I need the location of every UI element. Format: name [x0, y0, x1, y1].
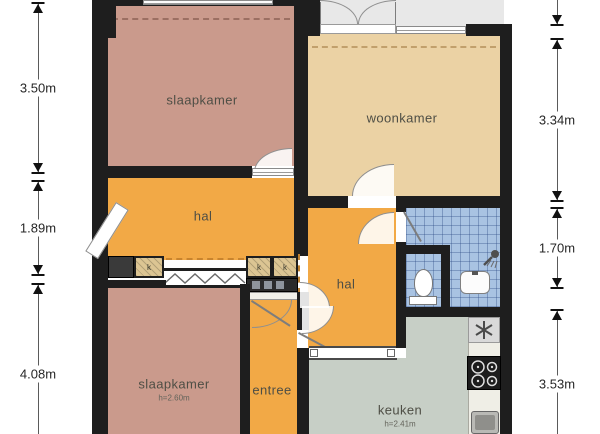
window — [143, 0, 273, 5]
closet-label: k — [147, 263, 151, 272]
kitchen-sink-icon — [471, 411, 499, 434]
open-boundary-dashed — [166, 258, 244, 260]
closet: k — [272, 256, 298, 278]
wall — [294, 0, 308, 256]
room-label: hal — [194, 209, 213, 224]
wall — [441, 245, 450, 307]
ceiling-height-label: h=2.60m — [158, 394, 189, 403]
dimension-label: 4.08m — [17, 365, 59, 382]
room-slaapkamer-bottom — [108, 288, 240, 434]
divider-post — [310, 349, 318, 357]
wall — [294, 0, 320, 36]
toilet-icon — [409, 296, 437, 305]
room-divider — [309, 346, 397, 360]
extractor-fan-icon — [468, 317, 500, 343]
divider-post — [387, 349, 395, 357]
counter-strip — [246, 292, 298, 300]
wall — [108, 166, 252, 178]
room-label: hal — [337, 277, 356, 292]
dimension: 3.34m — [535, 38, 579, 202]
room-label: keuken — [378, 403, 422, 418]
room-slaapkamer-top — [108, 5, 294, 166]
closet: k — [134, 256, 164, 278]
dimension-label: 3.34m — [536, 112, 578, 129]
folding-door — [164, 268, 246, 288]
dimension-label: 3.53m — [536, 376, 578, 393]
floor-plan: k k k slaapkamer woonka — [0, 0, 600, 434]
dimension: 3.50m — [16, 2, 60, 174]
toilet-icon — [414, 269, 433, 297]
ceiling-dashed-line — [312, 46, 496, 48]
shower-icon — [481, 248, 501, 272]
dimension: 4.08m — [16, 283, 60, 434]
ceiling-dashed-line — [112, 18, 290, 20]
door-opening — [348, 196, 396, 208]
room-label: woonkamer — [367, 111, 438, 126]
dimension-label: 3.50m — [17, 80, 59, 97]
dimension: 1.89m — [16, 180, 60, 276]
room-label: entree — [252, 383, 291, 398]
room-label: slaapkamer — [138, 377, 209, 392]
dimension: 3.53m — [535, 309, 579, 434]
wall — [500, 24, 512, 434]
wall — [396, 307, 500, 317]
door-leaf — [395, 2, 396, 24]
door-leaf — [320, 2, 321, 24]
duct-shaft — [108, 256, 134, 278]
balcony-door-opening — [320, 24, 396, 34]
dimension-partial — [535, 0, 579, 26]
closet-label: k — [283, 263, 287, 272]
closet-label: k — [257, 263, 261, 272]
dimension-label: 1.70m — [536, 240, 578, 257]
closet: k — [246, 256, 272, 278]
wall — [240, 284, 250, 434]
meter-unit — [252, 281, 260, 289]
dimension-label: 1.89m — [17, 220, 59, 237]
washbasin-icon — [460, 271, 490, 294]
room-label: slaapkamer — [166, 93, 237, 108]
wall — [108, 280, 166, 288]
meter-unit — [264, 281, 272, 289]
door-threshold — [252, 168, 294, 176]
window — [396, 26, 466, 34]
meter-unit — [276, 281, 284, 289]
ceiling-height-label: h=2.41m — [384, 420, 415, 429]
dimension: 1.70m — [535, 207, 579, 289]
wall — [297, 348, 309, 434]
stove-icon — [467, 356, 501, 390]
